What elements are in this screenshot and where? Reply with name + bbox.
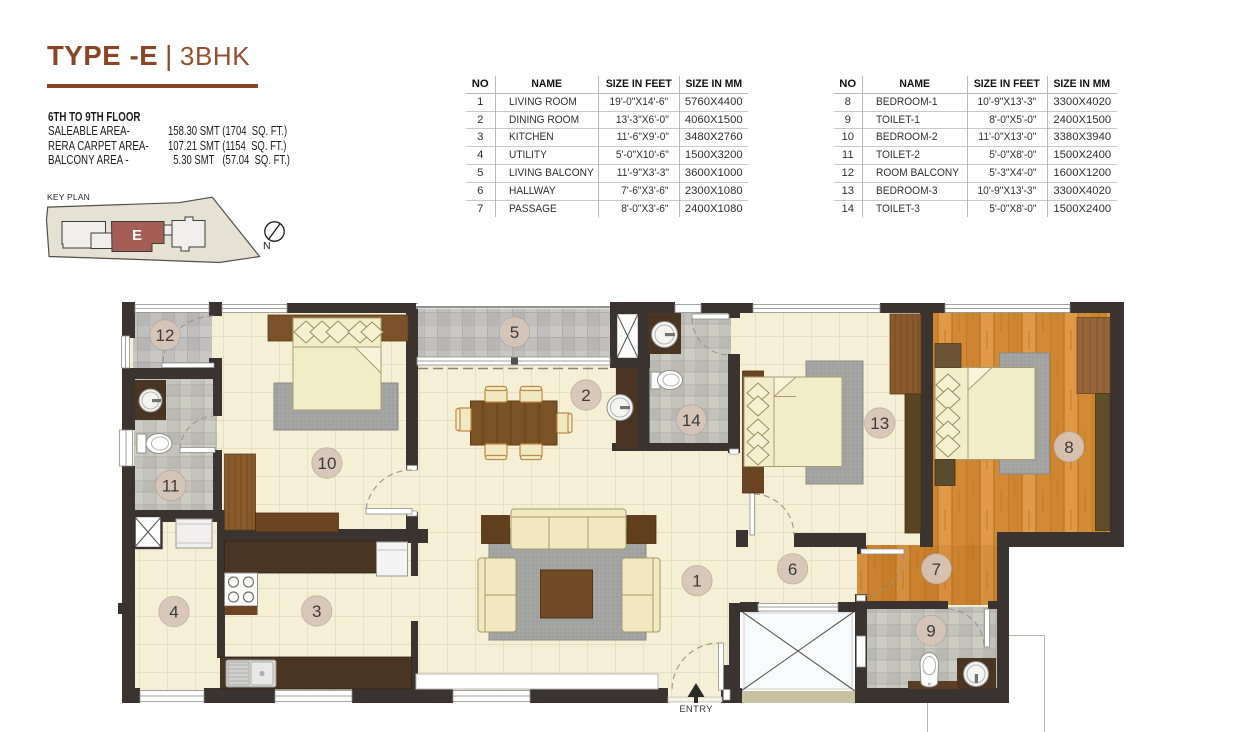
svg-text:3: 3	[312, 602, 321, 621]
svg-text:14: 14	[682, 411, 701, 430]
svg-text:11: 11	[162, 477, 180, 496]
svg-text:5: 5	[510, 323, 519, 342]
svg-text:4: 4	[169, 603, 178, 622]
svg-text:1: 1	[692, 572, 701, 591]
svg-text:12: 12	[156, 326, 175, 345]
svg-text:9: 9	[926, 621, 935, 640]
svg-text:8: 8	[1064, 438, 1073, 457]
svg-text:13: 13	[870, 414, 889, 433]
svg-text:7: 7	[932, 560, 941, 579]
svg-text:ENTRY: ENTRY	[679, 704, 713, 715]
svg-text:2: 2	[581, 386, 590, 405]
svg-text:10: 10	[318, 454, 337, 473]
svg-text:6: 6	[788, 560, 797, 579]
